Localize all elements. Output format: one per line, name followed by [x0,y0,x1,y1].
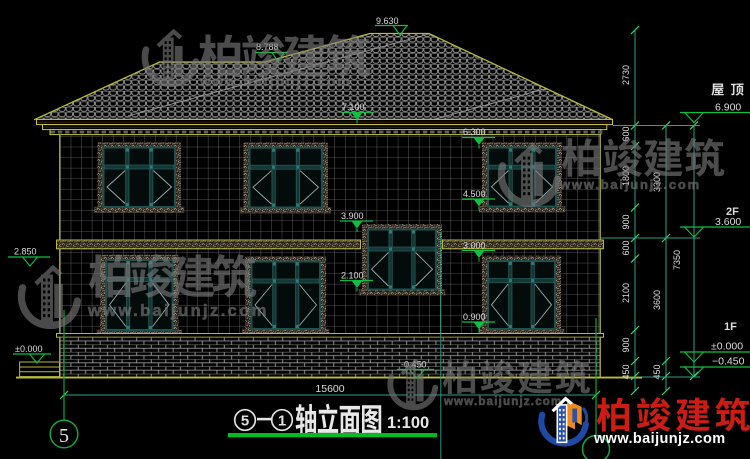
svg-text:2.100: 2.100 [341,271,364,281]
svg-text:900: 900 [621,337,631,352]
svg-text:4.500: 4.500 [463,189,486,199]
svg-text:7350: 7350 [672,250,682,270]
svg-text:900: 900 [621,214,631,229]
svg-text:www.baijunjz.com: www.baijunjz.com [559,177,701,192]
svg-text:www.baijunjz.com: www.baijunjz.com [199,74,352,89]
svg-text:2100: 2100 [621,283,631,303]
svg-text:±0.000: ±0.000 [711,341,743,353]
svg-text:9.630: 9.630 [376,16,399,26]
svg-text:7.100: 7.100 [342,102,365,112]
svg-text:6.900: 6.900 [715,102,741,114]
svg-text:www.baijunjz.com: www.baijunjz.com [593,431,726,447]
svg-text:15600: 15600 [315,383,344,395]
svg-text:3600: 3600 [652,290,662,310]
svg-text:600: 600 [621,240,631,255]
svg-text:www.baijunjz.com: www.baijunjz.com [443,396,562,408]
svg-text:0.900: 0.900 [463,312,486,322]
svg-text:www.baijunjz.com: www.baijunjz.com [87,302,269,320]
svg-text:3.000: 3.000 [463,241,486,251]
svg-text:5: 5 [241,413,249,430]
svg-text:6.300: 6.300 [463,127,486,137]
svg-text:3.600: 3.600 [715,216,741,228]
svg-text:1F: 1F [724,321,737,333]
svg-text:1: 1 [278,413,286,430]
svg-text:450: 450 [621,364,631,379]
svg-text:±0.000: ±0.000 [15,344,42,354]
svg-text:2.850: 2.850 [14,247,37,257]
svg-text:3.900: 3.900 [341,211,364,221]
svg-text:2730: 2730 [621,65,631,85]
svg-text:5: 5 [59,425,69,447]
svg-text:1:100: 1:100 [387,414,429,432]
svg-text:−0.450: −0.450 [712,356,745,368]
